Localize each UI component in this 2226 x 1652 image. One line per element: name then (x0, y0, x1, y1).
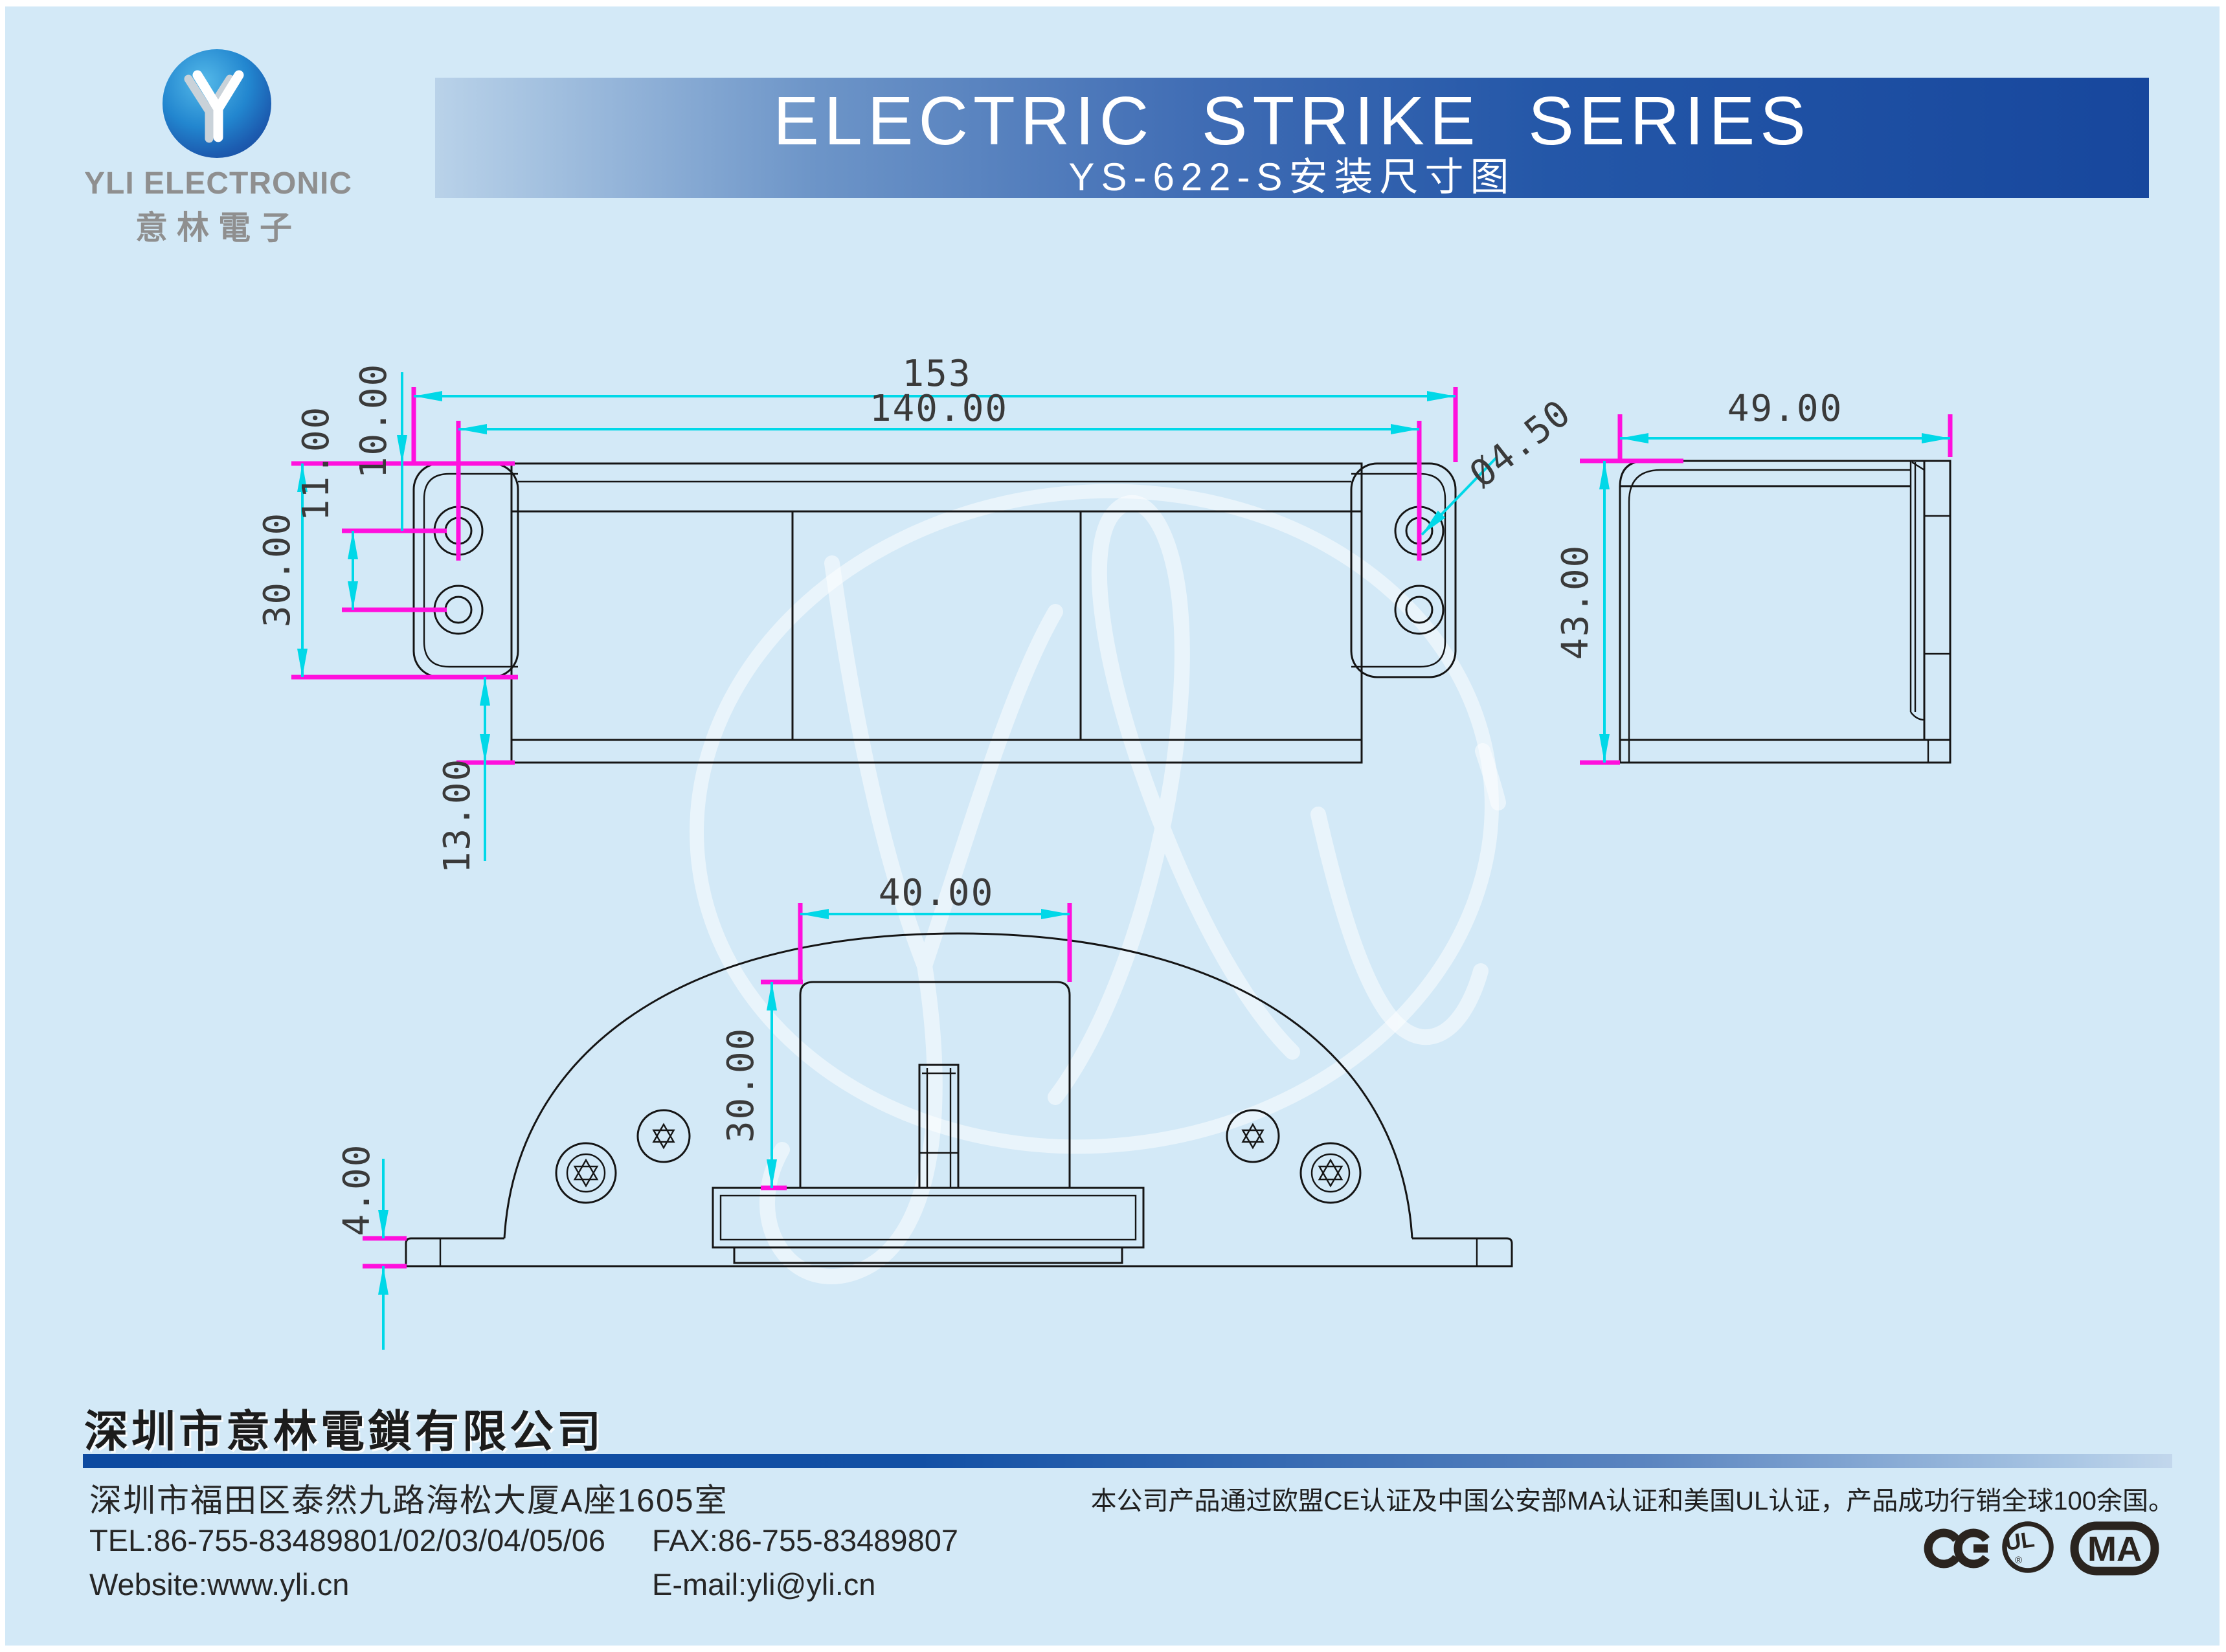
footer-fax: FAX:86-755-83489807 (652, 1523, 958, 1558)
ce-mark-icon (1928, 1533, 1988, 1564)
footer-certification-note: 本公司产品通过欧盟CE认证及中国公安部MA认证和美国UL认证，产品成功行销全球1… (1091, 1480, 2174, 1517)
top-view-dimensions: 153 140.00 30.00 11.00 10.00 13.00 Ø4.50 (256, 353, 1579, 873)
side-view (1620, 461, 1950, 763)
ma-mark-icon: MA (2074, 1526, 2155, 1571)
dim-block-height: 30.00 (720, 1027, 762, 1143)
svg-text:®: ® (2015, 1555, 2022, 1566)
footer-divider-bar (83, 1454, 2172, 1468)
drawing-sheet: YLI ELECTRONIC 意林電子 ELECTRIC STRIKE SERI… (0, 0, 2226, 1652)
svg-text:UL: UL (2003, 1527, 2036, 1556)
dim-edge-to-hole: 10.00 (353, 363, 395, 479)
footer-tel: TEL:86-755-83489801/02/03/04/05/06 (89, 1523, 605, 1558)
dim-plate-height: 30.00 (256, 512, 298, 628)
svg-text:MA: MA (2087, 1530, 2142, 1568)
dim-body-depth: 13.00 (436, 758, 478, 874)
dim-block-width: 40.00 (879, 872, 995, 914)
front-view (406, 933, 1512, 1266)
dim-hole-pitch: 11.00 (295, 406, 337, 522)
certification-marks: UL ® MA (1928, 1524, 2155, 1571)
front-view-dimensions: 40.00 30.00 4.00 (336, 872, 1070, 1350)
side-view-dimensions: 49.00 43.00 (1555, 388, 1950, 763)
dim-side-height: 43.00 (1555, 544, 1597, 660)
dim-side-width: 49.00 (1727, 388, 1843, 430)
footer-address: 深圳市福田区泰然九路海松大厦A座1605室 (89, 1475, 728, 1521)
dim-hole-diameter: Ø4.50 (1462, 392, 1579, 496)
dim-flange-thickness: 4.00 (336, 1144, 378, 1236)
footer-company-name: 深圳市意林電鎖有限公司 (84, 1396, 604, 1460)
ul-mark-icon: UL ® (2003, 1524, 2051, 1570)
footer-email: E-mail:yli@yli.cn (652, 1567, 875, 1602)
dim-hole-spacing: 140.00 (870, 388, 1008, 430)
footer-website: Website:www.yli.cn (89, 1567, 349, 1602)
top-view (414, 463, 1456, 763)
